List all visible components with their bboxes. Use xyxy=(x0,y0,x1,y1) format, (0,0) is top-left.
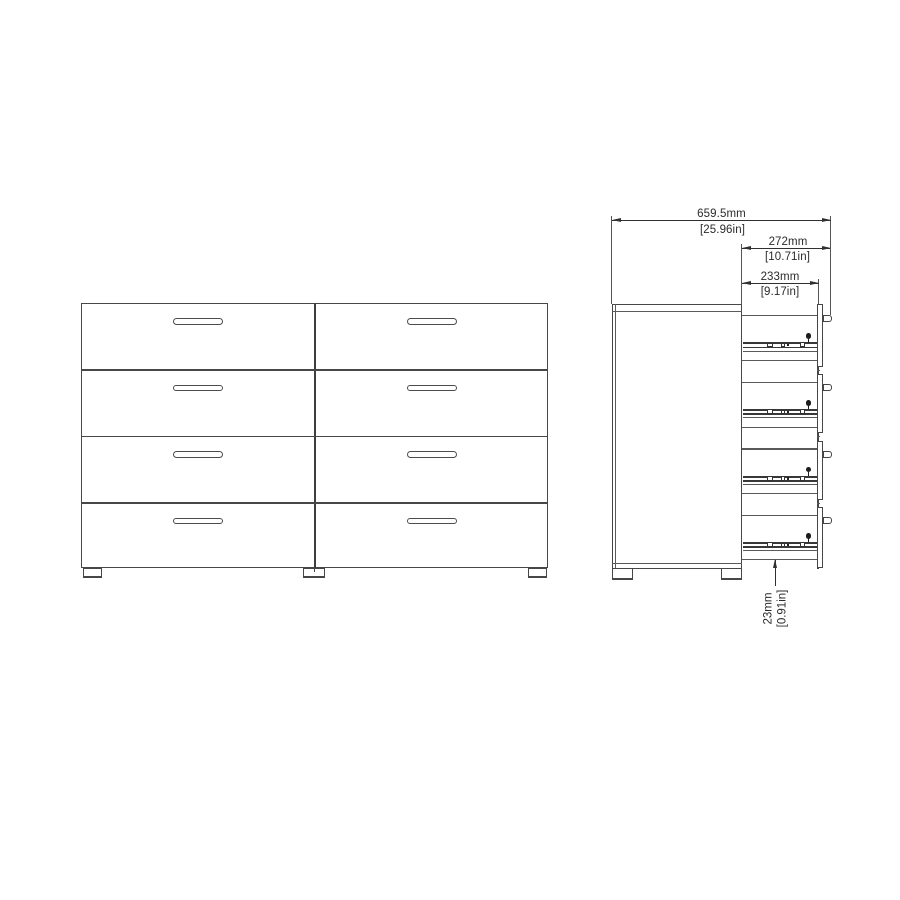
dim-label-rotated: 23mm [0.91in] xyxy=(762,586,789,632)
side-column-line xyxy=(742,493,818,494)
dim-label-mm: 233mm xyxy=(700,271,860,284)
side-handle-profile xyxy=(823,384,833,391)
extension-line xyxy=(830,216,831,316)
dim-label-mm: 272mm xyxy=(708,236,868,249)
front-joint-step xyxy=(817,503,820,504)
dim-label-inch: [9.17in] xyxy=(700,286,860,299)
side-foot-front xyxy=(721,568,742,580)
drawer-front-profile xyxy=(817,507,823,568)
front-joint-step xyxy=(817,436,820,437)
dim-label-inch: [25.96in] xyxy=(643,224,803,237)
side-handle-profile xyxy=(823,517,833,524)
side-column-line xyxy=(742,515,818,516)
technical-drawing-canvas: 659.5mm [25.96in] 272mm [10.71in] 233mm … xyxy=(0,0,900,900)
arrowhead xyxy=(612,218,621,222)
dim-label-mm: 659.5mm xyxy=(642,208,802,221)
dim-label-inch: [0.91in] xyxy=(776,586,790,632)
side-column-line xyxy=(742,382,818,383)
side-bottom-panel-line xyxy=(612,563,743,564)
side-top-panel-line xyxy=(612,311,743,312)
side-column-line xyxy=(742,315,818,316)
drawer-front-profile xyxy=(817,304,823,367)
extension-line xyxy=(611,216,612,304)
side-view xyxy=(0,0,900,900)
side-column-line xyxy=(742,448,818,449)
arrowhead xyxy=(773,559,777,568)
side-column-line xyxy=(742,427,818,428)
side-back-panel-line xyxy=(615,304,616,569)
side-handle-profile xyxy=(823,451,833,458)
side-handle-profile xyxy=(823,315,833,322)
side-carcass-outline xyxy=(612,304,743,569)
side-column-line xyxy=(742,360,818,361)
drawer-front-profile xyxy=(817,441,823,500)
front-joint-step xyxy=(817,370,820,371)
dim-label-inch: [10.71in] xyxy=(708,251,868,264)
dim-label-mm: 23mm xyxy=(762,586,776,632)
arrowhead xyxy=(822,218,831,222)
side-column-line xyxy=(742,559,818,560)
side-foot-back xyxy=(612,568,633,580)
